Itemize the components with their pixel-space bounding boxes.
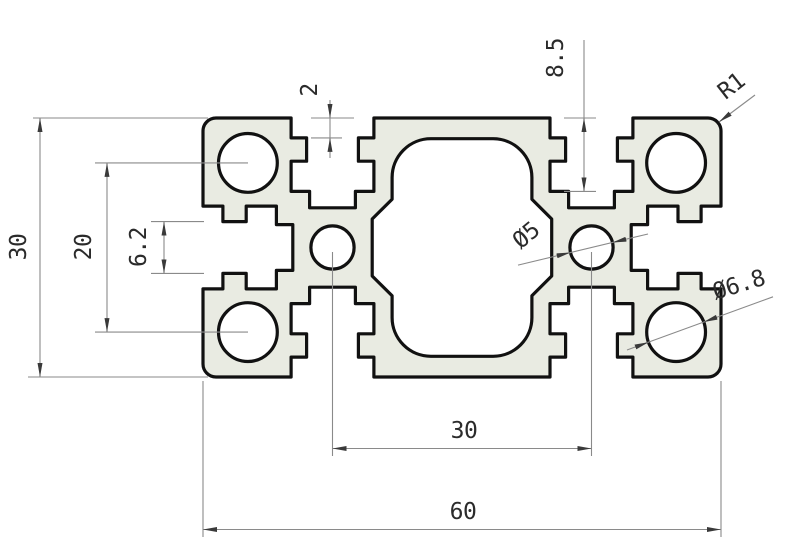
dim-slot-depth-label: 8.5	[543, 38, 569, 78]
dim-height-label: 30	[6, 234, 32, 261]
dim-slot-opening-label: 6.2	[126, 227, 152, 267]
dim-corner-radius: R1	[713, 68, 755, 122]
dim-width-label: 60	[450, 499, 477, 525]
dim-lip-depth-label: 2	[297, 83, 323, 96]
dim-slot-opening: 6.2	[126, 222, 204, 274]
dim-hole-pitch-label: 20	[71, 234, 97, 261]
dim-width: 60	[203, 381, 721, 537]
extrusion-profile-drawing: 30 20 6.2 2 8.5 R1 Ø5	[0, 0, 804, 557]
dim-corner-hole-label: Ø6.8	[710, 265, 769, 305]
dim-center-hole-pitch-label: 30	[451, 418, 478, 444]
dim-corner-radius-label: R1	[713, 68, 750, 105]
corner-hole-top-right	[647, 134, 706, 193]
cad-drawing-canvas: 30 20 6.2 2 8.5 R1 Ø5	[0, 0, 804, 557]
